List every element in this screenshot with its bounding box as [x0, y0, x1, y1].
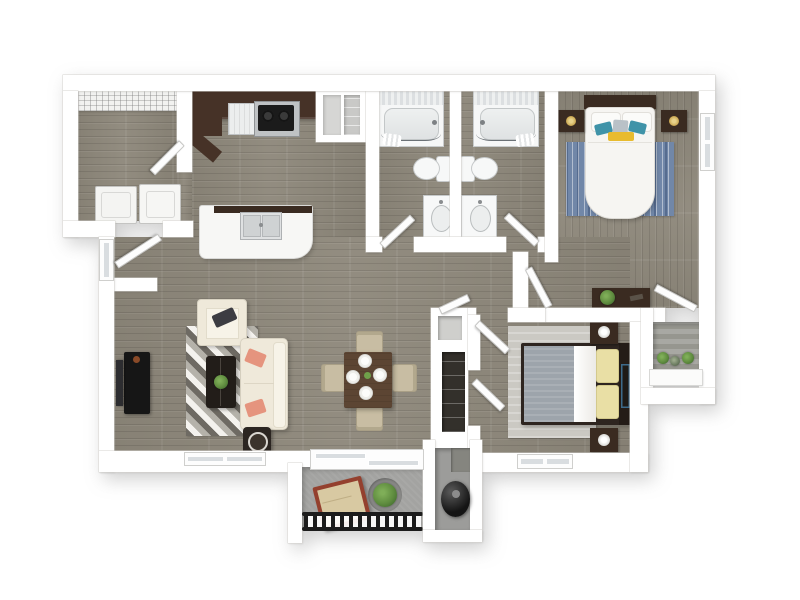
- toilet-1: [414, 156, 450, 182]
- plate-left: [346, 370, 360, 384]
- pantry-box: [316, 88, 366, 142]
- wall-hall-stub: [513, 252, 528, 310]
- sofa-pillow-coral-top: [244, 348, 267, 368]
- bedroom1-window: [701, 114, 714, 170]
- armchair: [197, 299, 247, 346]
- toilet2-bowl: [472, 158, 497, 179]
- sliding-door-panel-a: [315, 453, 366, 459]
- entry-sidelight-window: [100, 240, 113, 280]
- bedroom2-window-pane-a: [521, 459, 543, 464]
- entry-sidelight-pane: [104, 243, 109, 277]
- patio-plant: [373, 483, 397, 507]
- tub1-curtain: [382, 133, 401, 147]
- bed2-pillow-top: [596, 349, 619, 383]
- dresser-tray: [630, 294, 644, 302]
- wall-bath-left: [366, 85, 379, 252]
- vanity-2: [462, 196, 496, 238]
- balcony-floor: [653, 322, 699, 374]
- bedroom1-window-pane-b: [705, 144, 710, 167]
- bed2-blanket: [524, 346, 576, 422]
- bedroom2-lamp-bottom: [598, 434, 610, 446]
- sink-basin-right: [262, 215, 280, 237]
- wall-outer-left-upper: [63, 91, 78, 237]
- dining-table: [344, 352, 392, 408]
- bed2-pillow-bottom: [596, 385, 619, 419]
- wall-laundry-bottom-a: [63, 221, 115, 237]
- patio-sliding-door: [311, 450, 423, 469]
- bedroom2-window: [518, 455, 572, 468]
- wall-bath-bottom-b: [414, 237, 506, 252]
- vanity1-sink: [431, 205, 452, 232]
- tub2-curtain: [515, 133, 534, 147]
- tub1-faucet: [432, 120, 437, 125]
- burner-left: [262, 110, 274, 122]
- coffee-table: [206, 356, 236, 408]
- tv: [116, 360, 123, 406]
- wall-outer-top: [63, 75, 715, 91]
- closet-block: [431, 308, 468, 452]
- toilet1-bowl: [414, 158, 439, 179]
- patio-table-seam: [322, 496, 351, 504]
- dining-chair-left: [321, 364, 346, 392]
- bathtub-1: [379, 88, 443, 146]
- storage-utility-box: [451, 448, 470, 472]
- bedroom2-nightstand-bottom: [590, 428, 618, 452]
- sofa: [240, 338, 288, 430]
- water-heater-cap: [452, 490, 460, 498]
- nightstand-left-lamp: [566, 116, 576, 126]
- bedroom1-window-pane-a: [705, 117, 710, 140]
- wire-shelf: [78, 91, 177, 111]
- wall-balcony-bottom: [641, 388, 715, 404]
- wall-storage-bottom: [423, 530, 482, 542]
- wall-laundry-bottom-b: [163, 221, 193, 237]
- bedroom2-nightstand-top: [590, 320, 618, 344]
- bed2-frame: [521, 343, 631, 425]
- bedroom1-dresser: [592, 288, 650, 308]
- sofa-pillow-coral-bottom: [244, 398, 266, 417]
- bedroom2-closet-shelves: [442, 352, 465, 432]
- dining-chair-bottom: [356, 406, 383, 431]
- dresser-plant: [600, 290, 615, 305]
- wall-bedroom1-left: [545, 75, 558, 262]
- dryer: [139, 184, 181, 224]
- living-window-pane-b: [227, 457, 262, 461]
- sliding-door-panel-b: [368, 460, 419, 466]
- table-centerpiece: [364, 372, 371, 379]
- dishwasher: [228, 103, 255, 135]
- kitchen-island: [200, 206, 312, 258]
- wall-storage-right: [470, 440, 482, 540]
- bed2-sheet-fold: [574, 346, 596, 422]
- toilet-2: [461, 156, 497, 182]
- balcony-plant-1: [657, 352, 669, 364]
- wall-laundry-right: [177, 88, 192, 172]
- console-decor: [133, 356, 140, 363]
- tub2-faucet: [480, 120, 485, 125]
- bedroom2-wall-art: [621, 364, 630, 408]
- railing-slats: [304, 516, 421, 527]
- dining-chair-right: [392, 364, 417, 392]
- range: [254, 101, 300, 137]
- balcony-plant-3: [682, 352, 694, 364]
- vanity1-faucet: [439, 200, 443, 204]
- bed1-headboard: [584, 95, 656, 109]
- wall-bath-middle: [450, 85, 461, 237]
- side-table-ring: [248, 432, 268, 452]
- bedroom2-lamp-top: [598, 326, 610, 338]
- vanity2-faucet: [478, 200, 482, 204]
- sofa-seat-divider: [244, 383, 274, 384]
- bedroom1-nightstand-right: [661, 110, 687, 132]
- coffee-table-plant: [214, 375, 228, 389]
- nightstand-right-lamp: [669, 116, 679, 126]
- bedroom2-window-pane-b: [547, 459, 569, 464]
- wall-bedroom2-top-b: [508, 308, 545, 322]
- water-heater: [441, 481, 470, 517]
- hall-cubby: [438, 316, 462, 340]
- floor-plan-canvas: [0, 0, 800, 600]
- railing-bottom-bar: [302, 527, 423, 531]
- plate-bottom: [359, 386, 373, 400]
- washer-lid: [101, 192, 131, 218]
- living-window-pane-a: [188, 457, 223, 461]
- patio-railing: [302, 512, 423, 532]
- tv-console: [124, 352, 150, 414]
- sofa-back: [273, 342, 286, 428]
- wall-bath-bottom-a: [366, 237, 382, 252]
- bed1-comforter-seam: [588, 142, 652, 143]
- apartment-3d-floor-plan: [0, 0, 800, 600]
- wall-patio-left: [288, 463, 302, 543]
- burner-right: [278, 110, 290, 122]
- washer: [95, 186, 137, 224]
- bed1-mattress: [586, 108, 654, 218]
- faucet: [259, 223, 263, 227]
- wall-storage-left: [423, 440, 435, 540]
- dryer-door: [146, 191, 175, 218]
- balcony-plant-2: [670, 356, 680, 366]
- bed1-throw-yellow: [608, 132, 634, 141]
- pantry-shelves: [344, 95, 360, 135]
- double-sink: [240, 212, 282, 240]
- bathtub-2: [474, 88, 538, 146]
- living-window: [185, 453, 265, 465]
- balcony-planter-ledge: [650, 370, 702, 385]
- bedroom1-nightstand-left: [558, 110, 584, 132]
- vanity2-sink: [470, 205, 491, 232]
- refrigerator-nook: [323, 95, 341, 135]
- plate-right: [373, 368, 387, 382]
- plate-top: [358, 354, 372, 368]
